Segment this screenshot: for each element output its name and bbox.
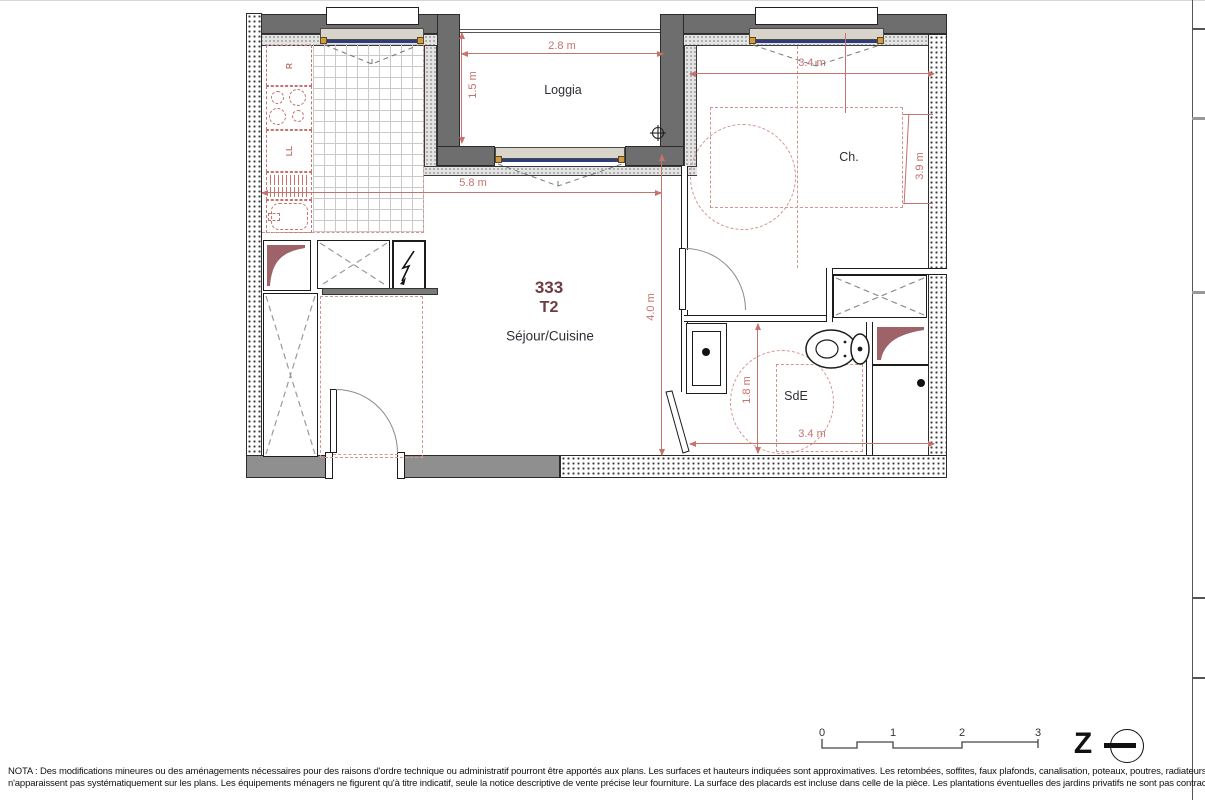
drain-icon — [650, 125, 666, 141]
shower-cross-icon — [836, 278, 924, 315]
duct-wedge-icon — [877, 327, 924, 360]
north-compass-needle — [1104, 743, 1136, 748]
scale-label-2: 2 — [959, 727, 965, 739]
nota-line-2: n'apparaissent pas systématiquement sur … — [8, 778, 1205, 789]
scale-label-1: 1 — [890, 727, 896, 739]
plan-symbols-layer — [0, 0, 1205, 800]
toilet-icon — [806, 330, 869, 368]
wardrobe-cross-icon — [266, 243, 387, 454]
scale-label-3: 3 — [1035, 727, 1041, 739]
window-opening-icon — [325, 45, 880, 186]
lightning-icon — [402, 251, 414, 281]
north-letter: Z — [1074, 727, 1092, 761]
scale-label-0: 0 — [819, 727, 825, 739]
sheet: { "plan": { "unit_number": "333", "unit_… — [0, 0, 1205, 800]
nota-line-1: NOTA : Des modifications mineures ou des… — [8, 766, 1205, 777]
scale-bar — [822, 739, 1038, 748]
showerroom-door-leaf — [666, 391, 689, 453]
duct-wedge-icon — [267, 245, 305, 286]
